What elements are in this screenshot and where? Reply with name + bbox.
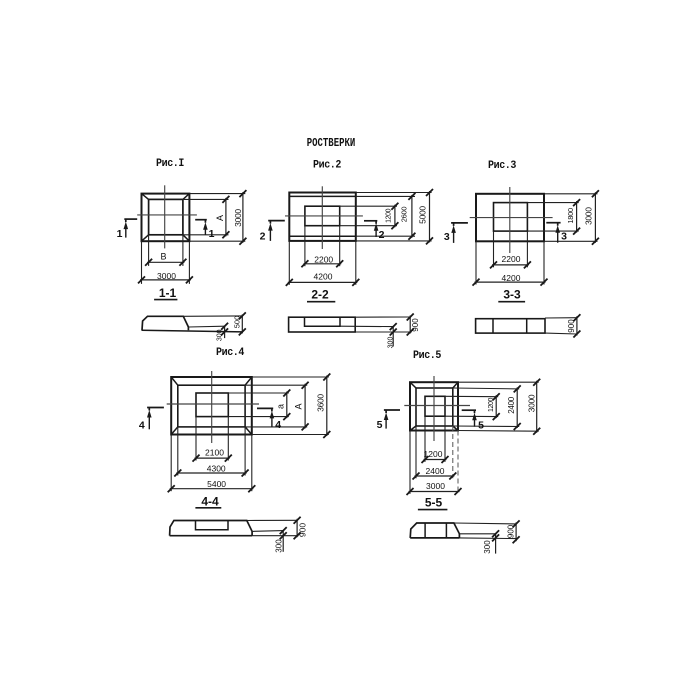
svg-text:5000: 5000 [418, 206, 428, 224]
svg-text:2400: 2400 [426, 466, 445, 476]
svg-text:900: 900 [507, 524, 516, 538]
svg-text:В: В [160, 252, 166, 262]
svg-text:900: 900 [567, 319, 576, 333]
svg-text:5400: 5400 [207, 479, 226, 489]
svg-text:3600: 3600 [316, 394, 326, 412]
svg-text:5: 5 [377, 419, 383, 431]
svg-text:1800: 1800 [566, 208, 575, 224]
svg-text:5: 5 [478, 420, 484, 432]
svg-text:3: 3 [561, 231, 567, 243]
svg-text:а: а [276, 404, 286, 409]
svg-text:2100: 2100 [205, 448, 224, 458]
svg-text:2600: 2600 [400, 207, 409, 223]
svg-text:2400: 2400 [507, 396, 516, 413]
svg-text:1: 1 [117, 228, 123, 240]
svg-text:Рис.2: Рис.2 [313, 159, 341, 172]
svg-text:3: 3 [444, 231, 450, 243]
svg-text:2: 2 [379, 229, 385, 241]
svg-text:1: 1 [209, 228, 215, 240]
svg-text:1200: 1200 [386, 208, 393, 222]
svg-text:300: 300 [275, 539, 284, 553]
svg-text:A: A [215, 215, 225, 221]
svg-text:2200: 2200 [502, 254, 521, 264]
svg-text:300: 300 [483, 540, 492, 554]
svg-text:4: 4 [275, 419, 281, 431]
svg-text:5-5: 5-5 [425, 496, 443, 510]
svg-text:2200: 2200 [314, 254, 333, 264]
svg-text:3000: 3000 [426, 481, 445, 491]
svg-text:РОСТВЕРКИ: РОСТВЕРКИ [307, 137, 356, 150]
svg-text:4: 4 [139, 420, 145, 432]
svg-text:3000: 3000 [157, 271, 176, 281]
svg-text:2-2: 2-2 [311, 288, 329, 302]
svg-text:Рис.I: Рис.I [156, 158, 184, 171]
svg-text:4300: 4300 [207, 463, 226, 473]
svg-text:1-1: 1-1 [159, 286, 177, 300]
svg-text:900: 900 [298, 523, 308, 537]
svg-text:А: А [294, 403, 304, 409]
svg-text:300: 300 [217, 329, 224, 341]
svg-text:500: 500 [233, 316, 242, 329]
svg-text:900: 900 [411, 318, 420, 332]
svg-text:Рис.4: Рис.4 [216, 347, 245, 360]
svg-text:300: 300 [388, 337, 395, 349]
svg-text:3-3: 3-3 [503, 288, 521, 302]
svg-text:4200: 4200 [502, 273, 521, 283]
svg-text:Рис.5: Рис.5 [413, 350, 441, 363]
svg-text:4200: 4200 [314, 272, 333, 282]
svg-text:1200: 1200 [488, 398, 495, 412]
svg-text:2: 2 [260, 230, 266, 242]
svg-text:Рис.3: Рис.3 [488, 160, 516, 173]
svg-text:3000: 3000 [584, 207, 594, 225]
svg-text:4-4: 4-4 [201, 495, 219, 509]
svg-text:1200: 1200 [424, 449, 443, 459]
svg-text:3000: 3000 [233, 209, 243, 227]
svg-text:3000: 3000 [527, 394, 537, 412]
